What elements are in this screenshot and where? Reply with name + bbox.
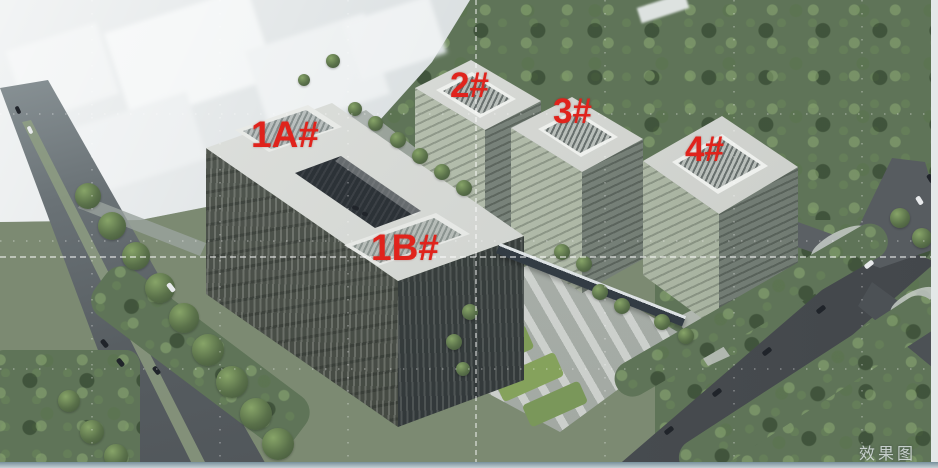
main-building-facade-southeast — [0, 0, 938, 468]
car — [926, 173, 935, 183]
building-label-1a: 1A# — [251, 116, 319, 153]
tower-4-roof-penthouse-rim — [0, 0, 938, 468]
street-tree — [912, 228, 932, 248]
building-label-2: 2# — [450, 68, 489, 103]
guide-line-horizontal-dashed — [0, 256, 938, 258]
car — [166, 282, 176, 293]
guide-line-vertical-dashed — [475, 0, 477, 468]
street-tree — [104, 444, 128, 468]
street-tree — [456, 362, 470, 376]
left-road — [0, 0, 938, 468]
street-tree — [446, 334, 462, 350]
street-tree — [348, 102, 362, 116]
street-tree — [98, 212, 126, 240]
car — [14, 106, 21, 115]
street-tree — [58, 390, 80, 412]
forest-canopy — [270, 0, 938, 252]
rooftop-equipment — [361, 211, 368, 217]
street-tree — [434, 164, 450, 180]
distant-city-haze — [0, 0, 938, 468]
car — [712, 387, 723, 397]
lawn-patch — [465, 324, 534, 374]
hazy-building-block — [343, 0, 447, 80]
guide-line-vertical-dotted — [733, 0, 735, 468]
rooftop-equipment — [352, 205, 360, 211]
street-tree — [412, 148, 428, 164]
tree-grove — [83, 258, 318, 455]
street-tree — [368, 116, 383, 131]
tower-2-roof — [0, 0, 938, 468]
building-label-3: 3# — [553, 94, 592, 129]
rooftop-penthouse-1b — [0, 0, 938, 468]
tower-3-facade-left — [0, 0, 938, 468]
west-access-road — [0, 0, 938, 468]
campus-walkway — [0, 0, 938, 468]
bottom-road — [0, 0, 938, 468]
lawn-patch — [522, 380, 588, 427]
car — [864, 259, 875, 269]
guide-line-vertical-dotted — [347, 0, 349, 468]
right-road-south — [0, 0, 938, 468]
street-tree — [145, 273, 175, 303]
tower-2-facade-left — [0, 0, 938, 468]
car — [100, 338, 109, 348]
building-label-1b: 1B# — [371, 229, 439, 266]
guide-line-vertical-dotted — [91, 0, 93, 468]
guide-line-horizontal-dotted — [0, 368, 938, 370]
hazy-building-block — [245, 13, 390, 132]
street-tree — [592, 284, 608, 300]
car — [116, 357, 125, 367]
street-tree — [554, 244, 570, 260]
road-median-strip — [0, 0, 938, 468]
street-tree — [122, 242, 150, 270]
tower-4-roof — [0, 0, 938, 468]
image-edge-right — [931, 0, 938, 468]
tower-2-roof-penthouse-rim — [0, 0, 938, 468]
road-spur — [0, 0, 938, 468]
guide-line-vertical-dotted — [861, 0, 863, 468]
guide-line-vertical-dotted — [219, 0, 221, 468]
car — [816, 304, 827, 314]
tower-4-facade-left — [0, 0, 938, 468]
watermark-text: 效果图 — [859, 440, 916, 464]
street-tree — [240, 398, 272, 430]
forest-canopy — [655, 220, 938, 468]
street-tree — [614, 298, 630, 314]
street-tree — [192, 334, 224, 366]
terrace-pond — [595, 223, 621, 240]
guide-line-vertical-dotted — [604, 0, 606, 468]
car — [915, 195, 924, 205]
guide-line-horizontal-dotted — [0, 113, 938, 115]
courtyard-parapet-highlight — [0, 0, 938, 468]
terrace-autumn-trees — [0, 0, 938, 468]
guide-line-horizontal-dotted — [0, 240, 938, 242]
hazy-building-block — [62, 92, 207, 199]
building-label-4: 4# — [685, 132, 724, 167]
rooftop-penthouse-1a — [0, 0, 938, 468]
street-tree — [75, 183, 101, 209]
main-building-facade-southwest — [0, 0, 938, 468]
pedestrian-plaza — [0, 0, 938, 468]
street-tree — [462, 304, 478, 320]
rooftop-penthouse-1b-rim — [0, 0, 938, 468]
street-tree — [262, 428, 294, 460]
lawn-patch — [494, 352, 565, 403]
tower-4-roof-penthouse — [0, 0, 938, 468]
main-building-roof — [0, 0, 938, 468]
tower-2-roof-penthouse — [0, 0, 938, 468]
street-tree — [678, 328, 694, 344]
street-tree — [169, 303, 199, 333]
street-tree — [576, 256, 592, 272]
street-tree — [390, 132, 406, 148]
hazy-building-block — [6, 22, 120, 123]
tree-grove — [0, 350, 140, 468]
tower-3-facade-right — [0, 0, 938, 468]
tower-3-roof — [0, 0, 938, 468]
car — [664, 425, 675, 435]
fog-overlay — [0, 0, 938, 468]
tower-4-facade-right — [0, 0, 938, 468]
car — [762, 346, 773, 356]
street-tree — [216, 366, 248, 398]
street-tree — [298, 74, 310, 86]
architectural-rendering: 1A# 1B# 2# 3# 4# 效果图 — [0, 0, 938, 468]
hazy-building-block — [104, 0, 276, 124]
tree-grove — [672, 289, 938, 468]
sidewalk-patch — [887, 281, 938, 320]
distant-white-roofs — [637, 0, 689, 23]
sidewalk-patch — [806, 219, 871, 268]
image-edge-bottom — [0, 462, 938, 468]
tower-2-facade-right — [0, 0, 938, 468]
plaza-ramp — [0, 0, 938, 468]
car — [152, 365, 161, 375]
street-tree — [456, 180, 472, 196]
sky-bridge — [496, 243, 686, 327]
tree-grove — [608, 217, 894, 403]
street-tree — [80, 420, 104, 444]
street-tree — [326, 54, 340, 68]
tower-3-roof-penthouse — [0, 0, 938, 468]
main-building-courtyard — [0, 0, 938, 468]
car — [26, 126, 33, 135]
roof-terrace-garden — [0, 0, 938, 468]
street-tree — [654, 314, 670, 330]
street-tree — [890, 208, 910, 228]
rooftop-penthouse-1a-rim — [0, 0, 938, 468]
tower-3-roof-penthouse-rim — [0, 0, 938, 468]
right-road-north — [0, 0, 938, 468]
